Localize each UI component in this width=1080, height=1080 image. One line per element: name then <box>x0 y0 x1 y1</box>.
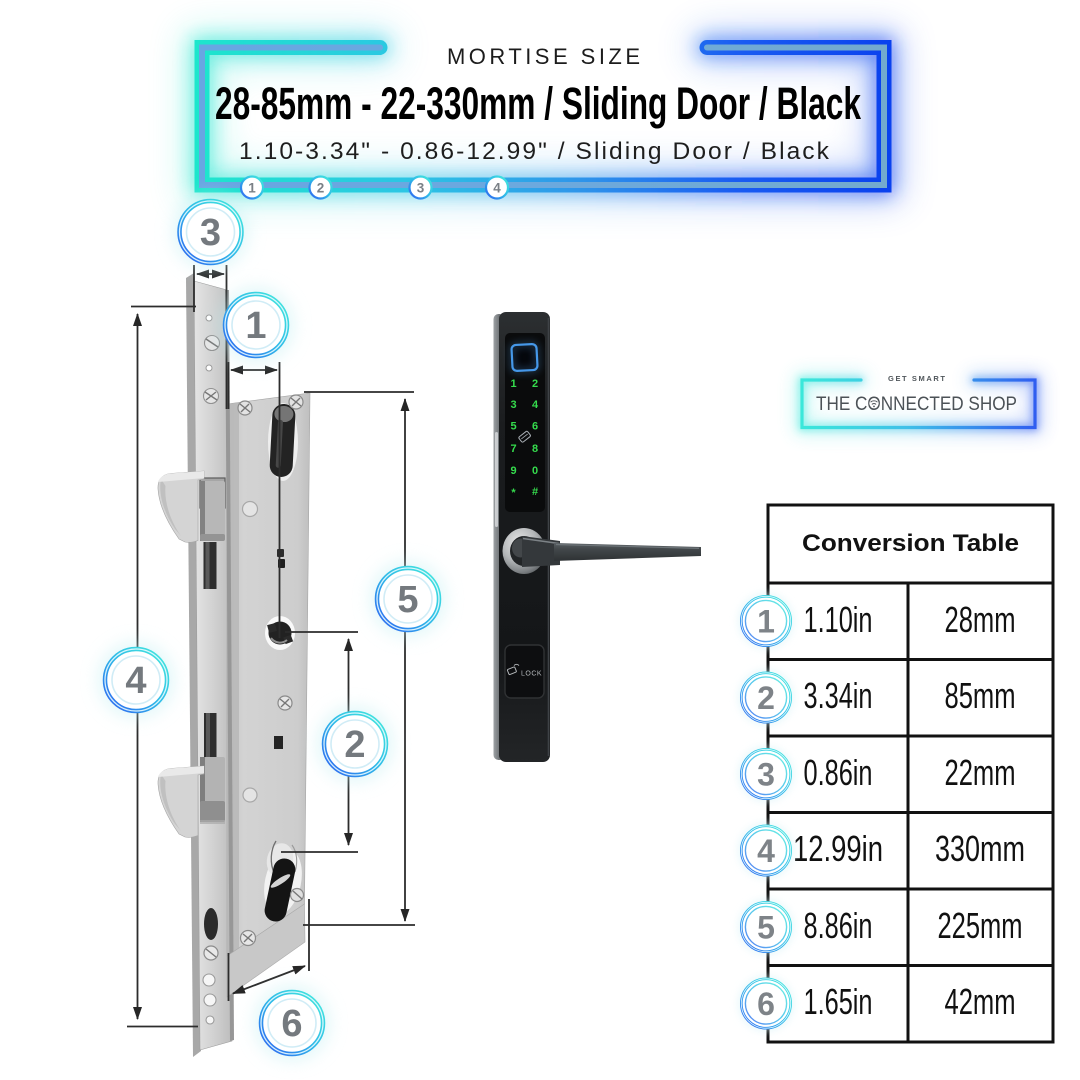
svg-text:1.65in: 1.65in <box>804 981 873 1022</box>
svg-text:5: 5 <box>757 910 775 946</box>
svg-text:MORTISE SIZE: MORTISE SIZE <box>447 44 647 69</box>
svg-text:THE CONNECTED SHOP: THE CONNECTED SHOP <box>816 394 1017 415</box>
svg-text:1.10-3.34" - 0.86-12.99" / Sli: 1.10-3.34" - 0.86-12.99" / Sliding Door … <box>239 138 831 165</box>
svg-text:0.86in: 0.86in <box>804 752 873 793</box>
svg-text:4: 4 <box>757 833 775 869</box>
svg-text:5: 5 <box>397 579 418 621</box>
svg-text:3.34in: 3.34in <box>804 675 873 716</box>
svg-text:4: 4 <box>125 660 146 702</box>
svg-text:LOCK: LOCK <box>521 671 542 678</box>
svg-text:0: 0 <box>532 465 538 477</box>
svg-text:6: 6 <box>281 1003 302 1045</box>
svg-text:3: 3 <box>510 399 516 411</box>
svg-text:225mm: 225mm <box>938 905 1023 946</box>
svg-text:3: 3 <box>417 181 425 196</box>
svg-text:9: 9 <box>510 465 516 477</box>
svg-text:8: 8 <box>532 443 538 455</box>
svg-text:1: 1 <box>757 604 775 640</box>
svg-text:1: 1 <box>245 305 266 347</box>
svg-text:5: 5 <box>510 421 516 433</box>
svg-text:2: 2 <box>532 378 538 390</box>
svg-text:3: 3 <box>757 757 775 793</box>
svg-text:#: # <box>532 486 538 498</box>
svg-text:1.10in: 1.10in <box>804 599 873 640</box>
svg-text:12.99in: 12.99in <box>793 828 883 869</box>
svg-text:8.86in: 8.86in <box>804 905 873 946</box>
svg-text:330mm: 330mm <box>935 828 1025 869</box>
svg-text:28mm: 28mm <box>945 599 1016 640</box>
svg-text:4: 4 <box>493 181 501 196</box>
svg-text:2: 2 <box>344 724 365 766</box>
svg-text:4: 4 <box>532 399 539 411</box>
svg-text:6: 6 <box>532 421 538 433</box>
svg-text:42mm: 42mm <box>945 981 1016 1022</box>
svg-text:7: 7 <box>510 443 516 455</box>
svg-text:*: * <box>511 487 516 499</box>
svg-text:3: 3 <box>200 212 221 254</box>
svg-text:28-85mm - 22-330mm / Sliding D: 28-85mm - 22-330mm / Sliding Door / Blac… <box>215 78 862 129</box>
svg-text:22mm: 22mm <box>945 752 1016 793</box>
svg-text:1: 1 <box>248 181 256 196</box>
svg-text:1: 1 <box>510 378 516 390</box>
svg-text:2: 2 <box>317 181 325 196</box>
svg-text:Conversion Table: Conversion Table <box>802 530 1019 557</box>
svg-text:85mm: 85mm <box>945 675 1016 716</box>
svg-text:6: 6 <box>757 986 775 1022</box>
svg-text:2: 2 <box>757 680 775 716</box>
svg-text:GET SMART: GET SMART <box>888 374 945 383</box>
